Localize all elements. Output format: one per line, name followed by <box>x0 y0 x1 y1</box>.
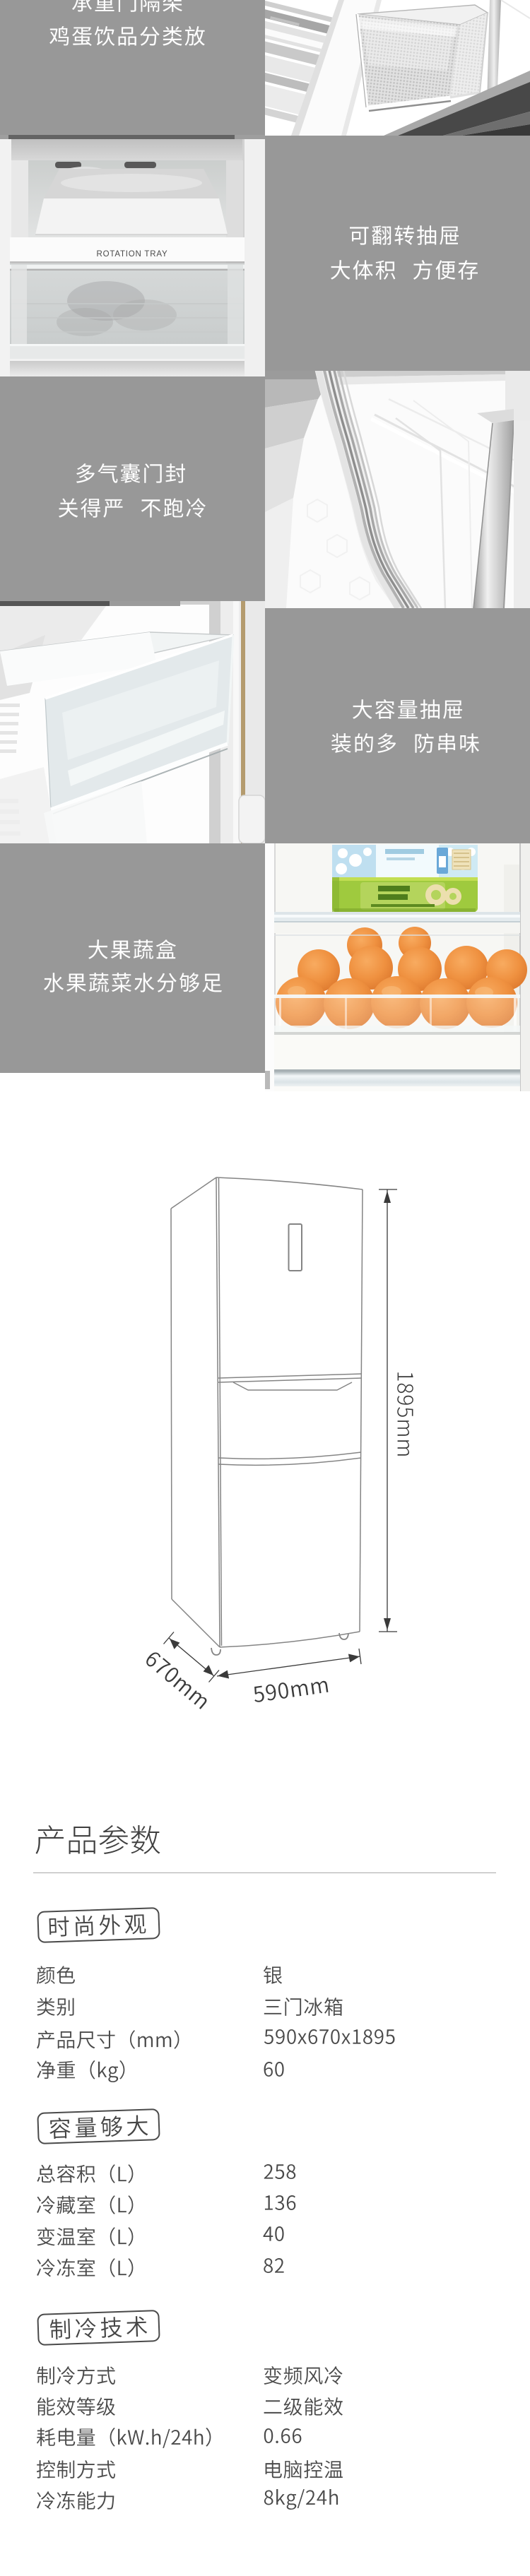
svg-text:ROTATION TRAY: ROTATION TRAY <box>97 250 168 259</box>
